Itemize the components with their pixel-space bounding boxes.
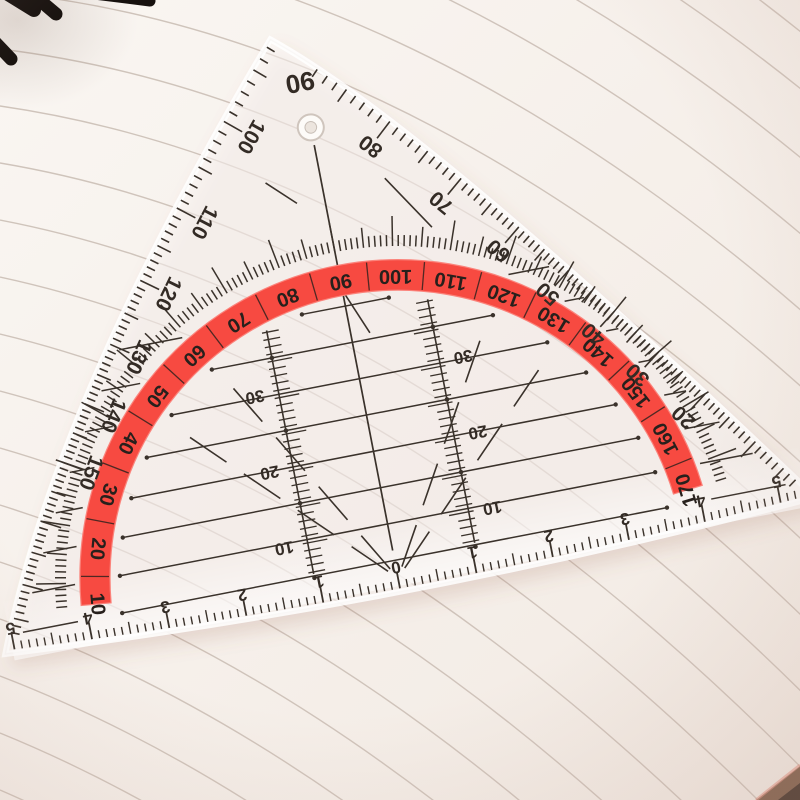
ladder-number: 20 — [467, 421, 489, 443]
ladder-number: 10 — [273, 537, 295, 559]
ladder-number: 30 — [244, 386, 266, 408]
ladder-number: 30 — [452, 345, 474, 367]
red-degree-number: 20 — [85, 537, 109, 561]
ladder-number: 20 — [259, 461, 281, 483]
red-degree-number: 100 — [379, 265, 413, 287]
photo-of-protractor-ruler-on-notebook: Transparent flexible protractor set-squa… — [0, 0, 800, 800]
scene-canvas: 1020301020301020304050607080901001101201… — [0, 0, 800, 800]
apex-90-number: 90 — [283, 65, 317, 100]
red-degree-number: 90 — [328, 269, 354, 295]
ladder-number: 10 — [481, 497, 503, 519]
